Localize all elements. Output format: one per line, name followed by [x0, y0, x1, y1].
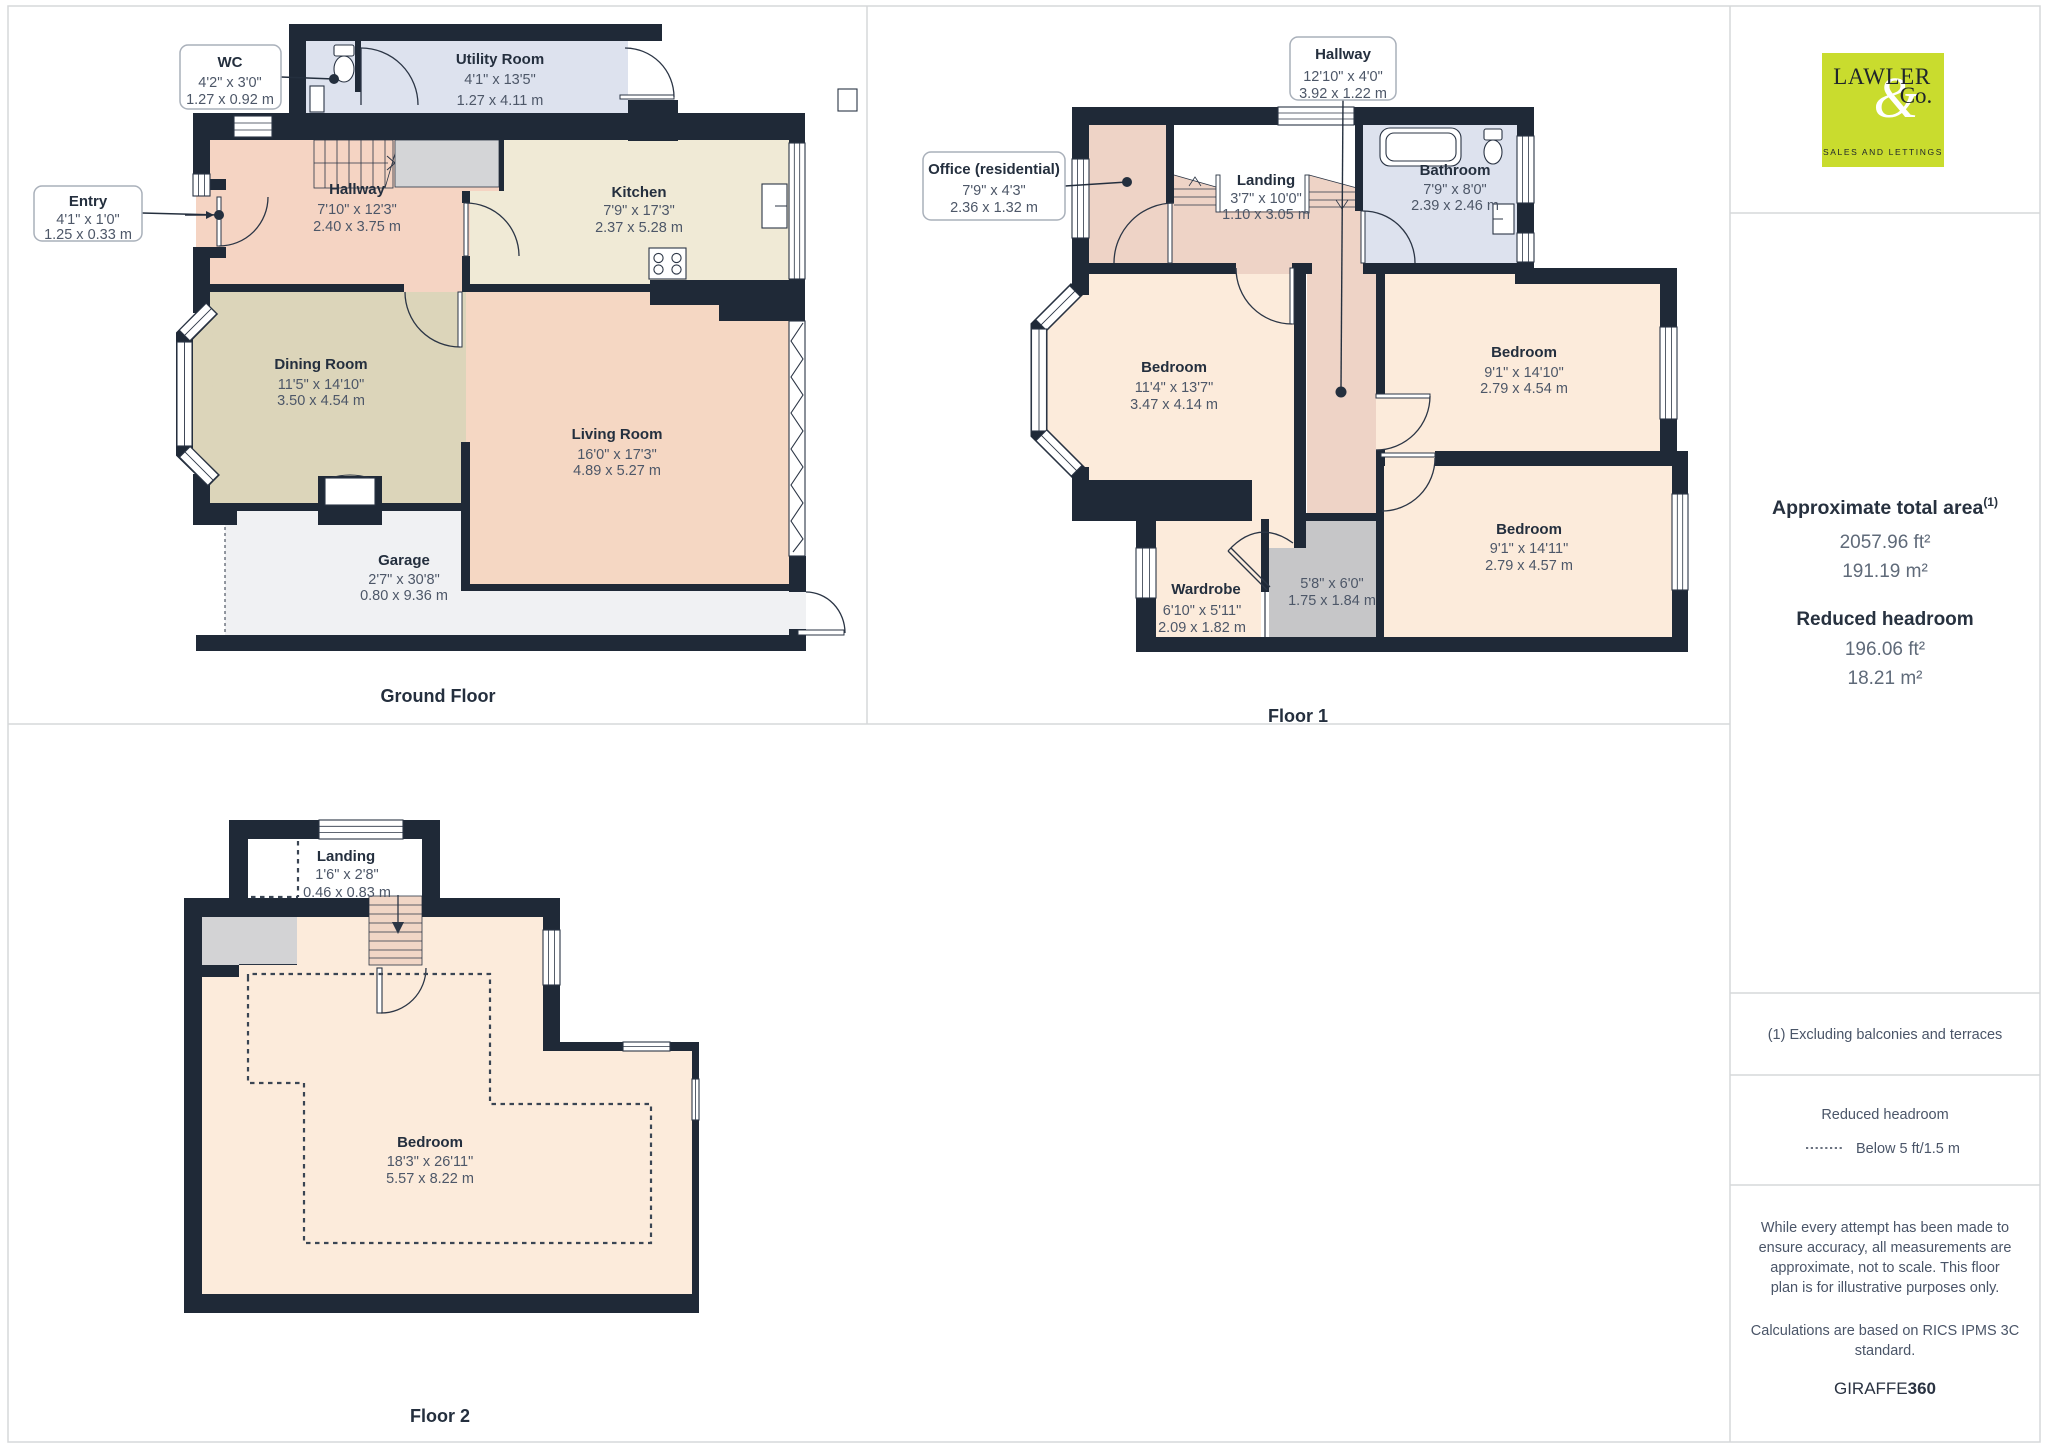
svg-text:Dining Room: Dining Room: [274, 356, 367, 373]
svg-text:3'7" x 10'0": 3'7" x 10'0": [1230, 191, 1301, 207]
svg-text:3.47 x 4.14 m: 3.47 x 4.14 m: [1130, 397, 1218, 413]
svg-text:Utility Room: Utility Room: [456, 51, 544, 68]
svg-text:plan is for illustrative purpo: plan is for illustrative purposes only.: [1771, 1280, 2000, 1296]
svg-text:7'10" x 12'3": 7'10" x 12'3": [317, 202, 397, 218]
svg-text:5.57 x 8.22 m: 5.57 x 8.22 m: [386, 1171, 474, 1187]
svg-text:ensure accuracy, all measureme: ensure accuracy, all measurements are: [1759, 1240, 2012, 1256]
svg-text:Bathroom: Bathroom: [1420, 162, 1491, 179]
svg-text:1.25 x 0.33 m: 1.25 x 0.33 m: [44, 227, 132, 243]
svg-text:Bedroom: Bedroom: [1496, 521, 1562, 538]
svg-text:2.39 x 2.46 m: 2.39 x 2.46 m: [1411, 198, 1499, 214]
svg-text:WC: WC: [218, 54, 243, 71]
svg-text:3.92 x 1.22 m: 3.92 x 1.22 m: [1299, 86, 1387, 102]
svg-text:Hallway: Hallway: [1315, 46, 1372, 63]
svg-text:3.50 x 4.54 m: 3.50 x 4.54 m: [277, 393, 365, 409]
svg-text:0.46 x 0.83 m: 0.46 x 0.83 m: [303, 885, 391, 901]
svg-text:Living Room: Living Room: [572, 426, 663, 443]
svg-text:9'1" x 14'11": 9'1" x 14'11": [1490, 541, 1568, 557]
svg-text:Entry: Entry: [69, 193, 108, 210]
svg-text:196.06 ft²: 196.06 ft²: [1845, 639, 1925, 660]
svg-text:Office (residential): Office (residential): [928, 161, 1060, 178]
svg-text:1'6" x 2'8": 1'6" x 2'8": [315, 867, 378, 883]
svg-text:0.80 x 9.36 m: 0.80 x 9.36 m: [360, 588, 448, 604]
svg-text:Ground Floor: Ground Floor: [381, 686, 496, 706]
svg-text:GIRAFFE360: GIRAFFE360: [1834, 1379, 1936, 1398]
svg-text:11'5" x 14'10": 11'5" x 14'10": [278, 377, 365, 393]
svg-text:4.89 x 5.27 m: 4.89 x 5.27 m: [573, 463, 661, 479]
svg-text:Reduced headroom: Reduced headroom: [1821, 1107, 1948, 1123]
svg-text:Wardrobe: Wardrobe: [1171, 581, 1240, 598]
svg-text:2.40 x 3.75 m: 2.40 x 3.75 m: [313, 219, 401, 235]
svg-text:1.10 x 3.05 m: 1.10 x 3.05 m: [1222, 207, 1310, 223]
svg-text:While every attempt has been m: While every attempt has been made to: [1761, 1220, 2009, 1236]
svg-text:Calculations are based on RICS: Calculations are based on RICS IPMS 3C: [1751, 1323, 2019, 1339]
svg-text:Floor 1: Floor 1: [1268, 706, 1328, 726]
svg-text:2.79 x 4.54 m: 2.79 x 4.54 m: [1480, 381, 1568, 397]
svg-text:2.09 x 1.82 m: 2.09 x 1.82 m: [1158, 620, 1246, 636]
svg-text:Bedroom: Bedroom: [1491, 344, 1557, 361]
svg-text:4'2" x 3'0": 4'2" x 3'0": [198, 75, 261, 91]
svg-text:Below 5 ft/1.5 m: Below 5 ft/1.5 m: [1856, 1141, 1960, 1157]
svg-text:Floor 2: Floor 2: [410, 1406, 470, 1426]
svg-text:1.27 x 4.11 m: 1.27 x 4.11 m: [457, 93, 544, 109]
svg-text:Bedroom: Bedroom: [397, 1134, 463, 1151]
svg-text:approximate, not to scale. Thi: approximate, not to scale. This floor: [1770, 1260, 2000, 1276]
svg-text:18.21 m²: 18.21 m²: [1848, 668, 1923, 689]
svg-text:4'1" x 13'5": 4'1" x 13'5": [464, 72, 535, 88]
svg-text:2'7" x 30'8": 2'7" x 30'8": [368, 572, 439, 588]
svg-text:5'8" x 6'0": 5'8" x 6'0": [1300, 576, 1363, 592]
svg-text:Landing: Landing: [1237, 172, 1295, 189]
svg-text:16'0" x 17'3": 16'0" x 17'3": [577, 447, 657, 463]
svg-text:9'1" x 14'10": 9'1" x 14'10": [1484, 365, 1564, 381]
svg-text:4'1" x 1'0": 4'1" x 1'0": [56, 212, 119, 228]
svg-text:standard.: standard.: [1855, 1343, 1915, 1359]
svg-text:1.27 x 0.92 m: 1.27 x 0.92 m: [186, 92, 274, 108]
svg-text:Approximate total area(1): Approximate total area(1): [1772, 495, 1998, 519]
svg-text:Reduced headroom: Reduced headroom: [1796, 609, 1973, 630]
svg-text:7'9" x 4'3": 7'9" x 4'3": [962, 183, 1025, 199]
svg-text:18'3" x 26'11": 18'3" x 26'11": [387, 1154, 474, 1170]
svg-text:2.79 x 4.57 m: 2.79 x 4.57 m: [1485, 558, 1573, 574]
svg-text:SALES AND LETTINGS: SALES AND LETTINGS: [1823, 147, 1943, 157]
svg-text:2.36 x 1.32 m: 2.36 x 1.32 m: [950, 200, 1038, 216]
svg-text:Landing: Landing: [317, 848, 375, 865]
svg-text:Bedroom: Bedroom: [1141, 359, 1207, 376]
svg-text:Garage: Garage: [378, 552, 430, 569]
svg-text:1.75 x 1.84 m: 1.75 x 1.84 m: [1288, 593, 1376, 609]
svg-text:Kitchen: Kitchen: [611, 184, 666, 201]
svg-text:191.19 m²: 191.19 m²: [1842, 561, 1928, 582]
svg-text:2.37 x 5.28 m: 2.37 x 5.28 m: [595, 220, 683, 236]
svg-text:7'9" x 8'0": 7'9" x 8'0": [1423, 182, 1486, 198]
svg-text:(1) Excluding balconies and te: (1) Excluding balconies and terraces: [1768, 1027, 2003, 1043]
svg-text:12'10" x 4'0": 12'10" x 4'0": [1303, 69, 1383, 85]
svg-text:Co.: Co.: [1900, 83, 1933, 108]
svg-text:6'10" x 5'11": 6'10" x 5'11": [1163, 603, 1241, 619]
svg-text:2057.96 ft²: 2057.96 ft²: [1840, 532, 1931, 553]
svg-text:7'9" x 17'3": 7'9" x 17'3": [603, 203, 674, 219]
svg-text:11'4" x 13'7": 11'4" x 13'7": [1135, 380, 1213, 396]
svg-text:Hallway: Hallway: [329, 181, 386, 198]
